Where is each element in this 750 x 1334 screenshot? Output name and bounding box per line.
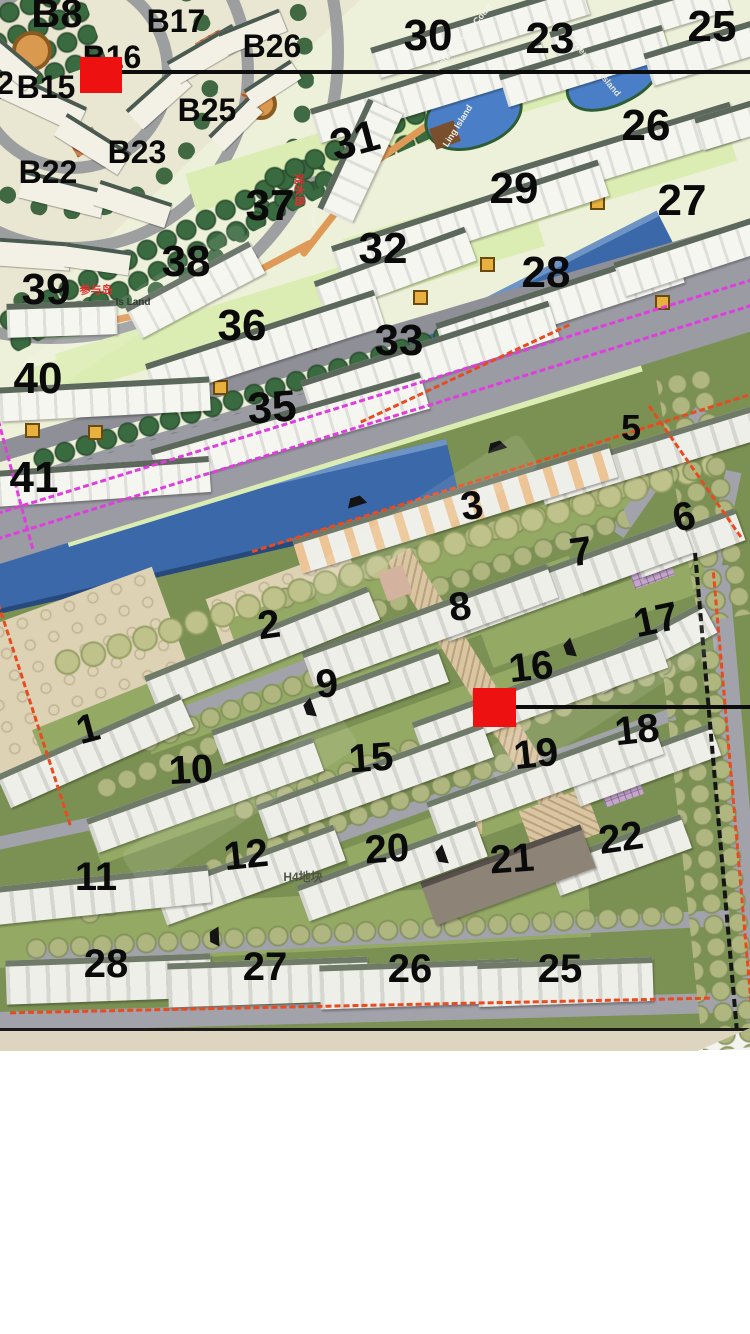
building-label-upper: B8 xyxy=(31,0,82,34)
map-annotation: Island xyxy=(309,208,317,228)
building-label-lower: 22 xyxy=(596,815,646,861)
path-node xyxy=(413,290,428,305)
building-label-lower: 21 xyxy=(488,837,535,880)
building-label-upper: 32 xyxy=(359,227,408,271)
building-label-upper: 25 xyxy=(688,5,737,49)
road-arrow xyxy=(200,926,219,947)
building-label-lower: 12 xyxy=(222,833,270,877)
building-label-upper: B22 xyxy=(19,156,78,188)
building-label-upper: B15 xyxy=(17,71,76,103)
building-label-upper: 41 xyxy=(10,456,59,500)
building-label-lower: 19 xyxy=(512,732,560,776)
building-label-lower: 10 xyxy=(168,749,215,791)
marker-indicator-line xyxy=(513,705,750,709)
building-label-upper: B26 xyxy=(243,30,302,62)
path-node xyxy=(25,423,40,438)
building-label-lower: 17 xyxy=(630,596,682,644)
building-label-lower: 26 xyxy=(388,949,433,989)
building-label-lower: 20 xyxy=(363,827,410,870)
selected-building-marker-16[interactable] xyxy=(473,688,516,727)
site-plan-map[interactable]: B8B17B26B162B15B25B23B223023252629273137… xyxy=(0,0,750,1050)
selected-building-marker-b16[interactable] xyxy=(80,57,122,93)
building-label-lower: 18 xyxy=(613,708,661,752)
building-label-upper: 2 xyxy=(0,67,14,99)
building-label-lower: 9 xyxy=(314,663,340,705)
building-label-lower: 5 xyxy=(621,410,641,446)
building-label-upper: 28 xyxy=(522,251,571,295)
building-label-upper: 40 xyxy=(14,357,63,401)
building-label-upper: 37 xyxy=(246,184,295,228)
building-label-upper: 29 xyxy=(490,167,539,211)
building-label-lower: 27 xyxy=(243,947,288,987)
building-label-lower: 15 xyxy=(347,736,394,779)
building-label-lower: 16 xyxy=(507,645,555,689)
building-label-upper: 30 xyxy=(404,14,453,58)
building-label-upper: 35 xyxy=(246,384,298,431)
screenshot-stage: B8B17B26B162B15B25B23B223023252629273137… xyxy=(0,0,750,1334)
building-label-upper: B17 xyxy=(147,5,206,37)
path-node xyxy=(480,257,495,272)
plan-bottom-border-strip xyxy=(0,1028,750,1051)
map-annotation: H4地块 xyxy=(283,871,322,883)
path-node xyxy=(88,425,103,440)
building-label-upper: 36 xyxy=(218,304,267,348)
building-label-upper: 26 xyxy=(622,104,671,148)
path-node xyxy=(213,380,228,395)
map-annotation: 参与岛 xyxy=(80,286,113,297)
building-label-upper: 39 xyxy=(22,268,71,312)
building-label-upper: B25 xyxy=(178,94,237,126)
building-label-lower: 28 xyxy=(84,944,129,984)
building-label-lower: 11 xyxy=(75,857,117,897)
building-label-lower: 25 xyxy=(538,949,583,989)
building-label-upper: 27 xyxy=(658,179,707,223)
building-label-upper: B23 xyxy=(108,136,167,168)
map-annotation: Is Land xyxy=(115,298,150,308)
building-label-upper: 23 xyxy=(526,17,575,61)
marker-indicator-line xyxy=(116,70,750,74)
building-label-upper: 38 xyxy=(162,240,211,284)
building-label-upper: 33 xyxy=(375,319,424,363)
